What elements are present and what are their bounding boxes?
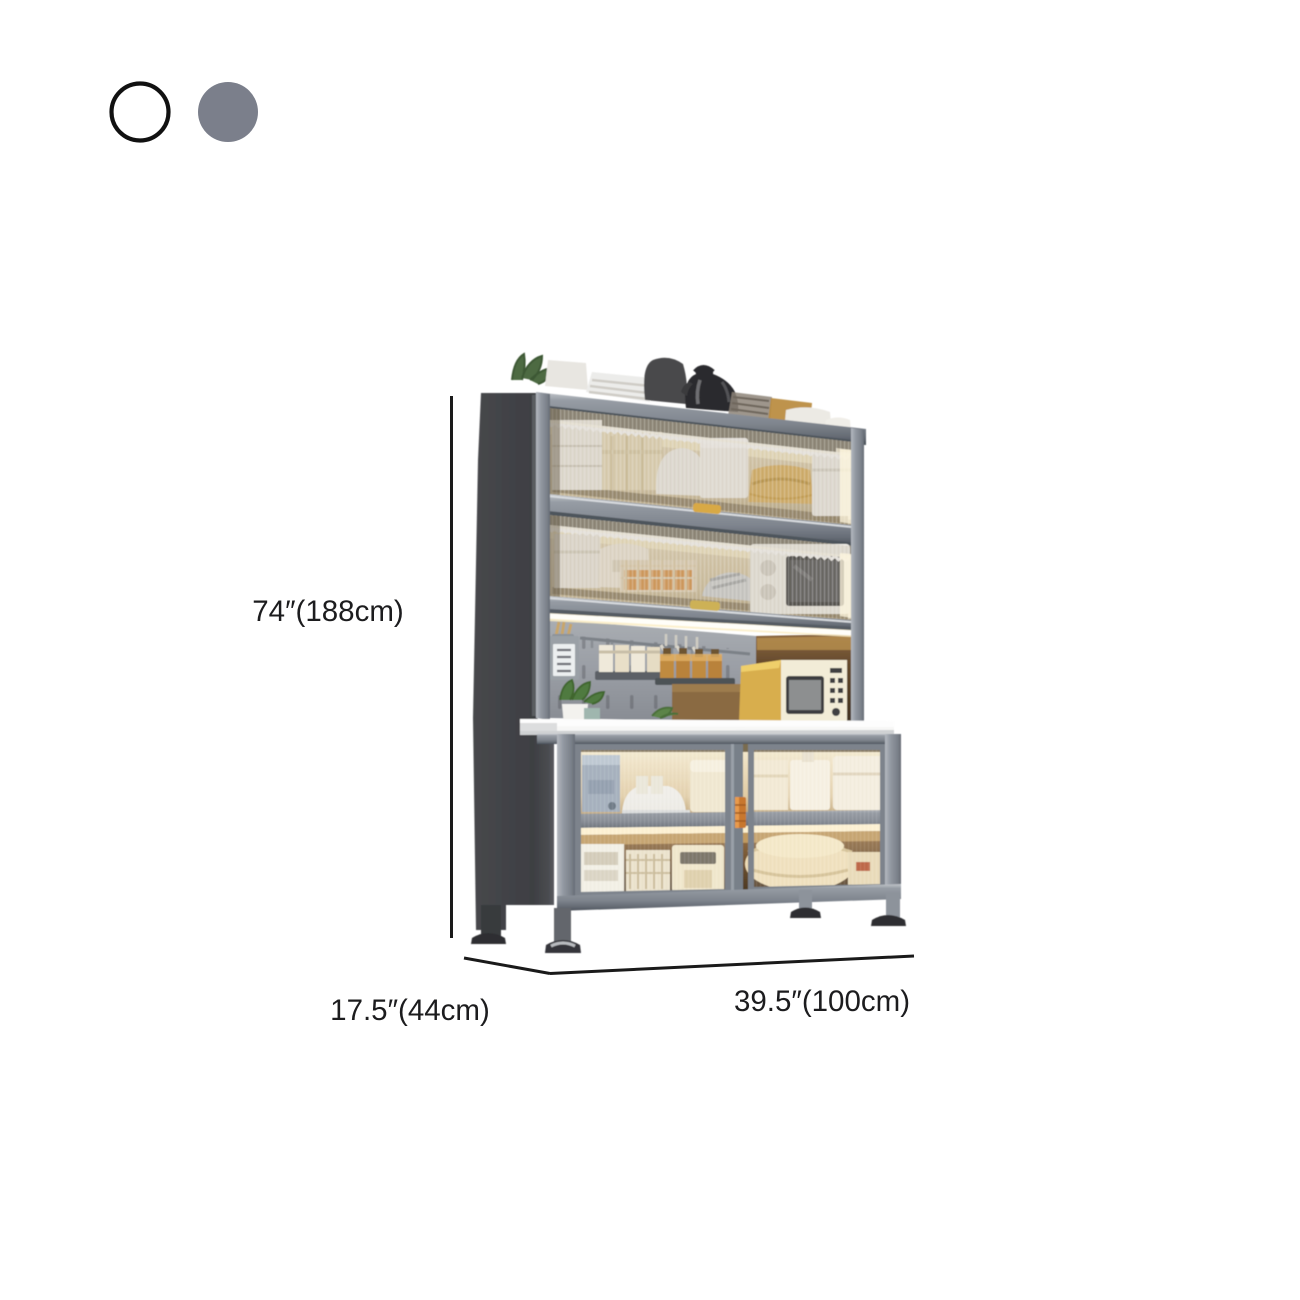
- svg-text:17.5″(44cm): 17.5″(44cm): [330, 994, 490, 1027]
- svg-text:74″(188cm): 74″(188cm): [252, 595, 403, 628]
- svg-text:39.5″(100cm): 39.5″(100cm): [734, 985, 910, 1018]
